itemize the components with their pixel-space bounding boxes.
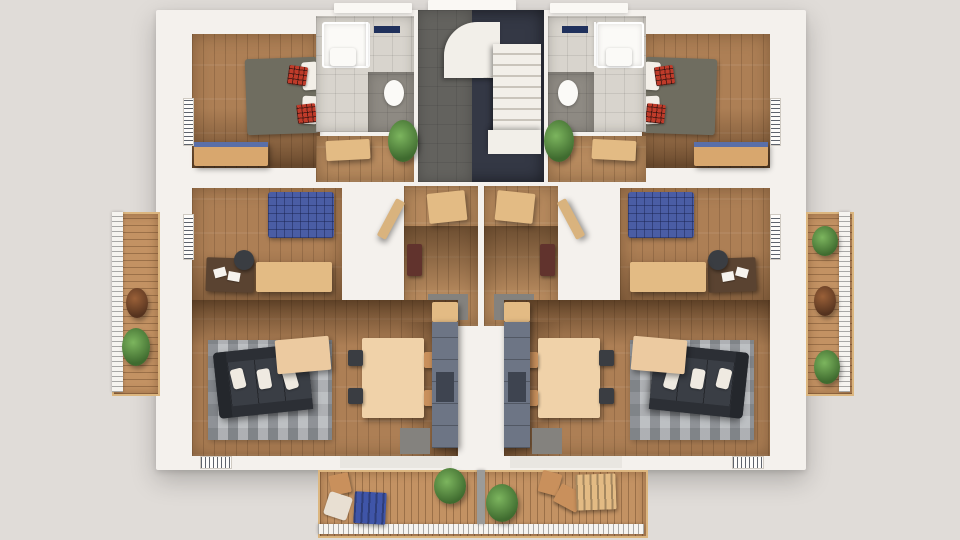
desk-papers [227,271,240,282]
render-canvas [0,0,960,540]
plaid-cushion [654,65,675,86]
balcony-doormat [400,428,430,454]
coffee-table [275,336,332,375]
office-chair [234,250,254,270]
kitchen-sideboard [504,302,530,322]
potted-plant [812,226,838,256]
toilet [384,80,404,106]
wardrobe-blue-top [194,142,268,147]
credenza [630,262,706,292]
blue-bed [628,192,694,238]
blue-bed [268,192,334,238]
potted-plant [122,328,150,366]
kitchen-appliance [436,372,454,402]
potted-plant [544,120,574,162]
plaid-cushion [645,103,666,124]
shower-glass [594,22,596,66]
potted-plant [814,350,840,384]
rust-shrub [814,286,836,316]
balcony-door-threshold [510,456,622,468]
office-chair [708,250,728,270]
staircase-run [493,44,541,136]
shower-glass [366,22,368,66]
window [770,214,781,260]
toilet [558,80,578,106]
dining-chair [348,388,363,404]
dining-chair [599,350,614,366]
staircase-landing [488,130,541,154]
towel-rail [562,26,588,33]
coat-rack-bench [495,190,536,224]
window [770,98,781,146]
plaid-cushion [287,65,308,86]
dining-chair [348,350,363,366]
dining-table [362,338,424,418]
outdoor-table [575,473,616,510]
sink [330,48,356,66]
coat-rack-bench [427,190,468,224]
balcony-doormat [532,428,562,454]
kitchen-sideboard [432,302,458,322]
towel-rail [374,26,400,33]
blue-lounger-table [353,491,387,525]
balcony-door-threshold [340,456,452,468]
potted-plant [434,468,466,504]
roof-tab-left [334,3,412,13]
kitchen-appliance [508,372,526,402]
window [200,456,232,469]
sink [606,48,632,66]
potted-plant [388,120,418,162]
rust-shrub [126,288,148,318]
potted-plant [486,484,518,522]
entry-cabinet [540,244,555,276]
balcony-railing [112,212,123,392]
entry-cabinet [407,244,422,276]
window [183,214,194,260]
plaid-cushion [296,103,317,124]
dining-chair [599,388,614,404]
wardrobe-blue-top [694,142,768,147]
coffee-table [631,336,688,375]
hall-bench [592,139,637,161]
hall-bench [326,139,371,161]
balcony-railing [839,212,850,392]
credenza [256,262,332,292]
roof-tab-right [550,3,628,13]
window [732,456,764,469]
window [183,98,194,146]
dining-table [538,338,600,418]
balcony-divider [477,470,485,524]
balcony-railing [318,524,644,534]
